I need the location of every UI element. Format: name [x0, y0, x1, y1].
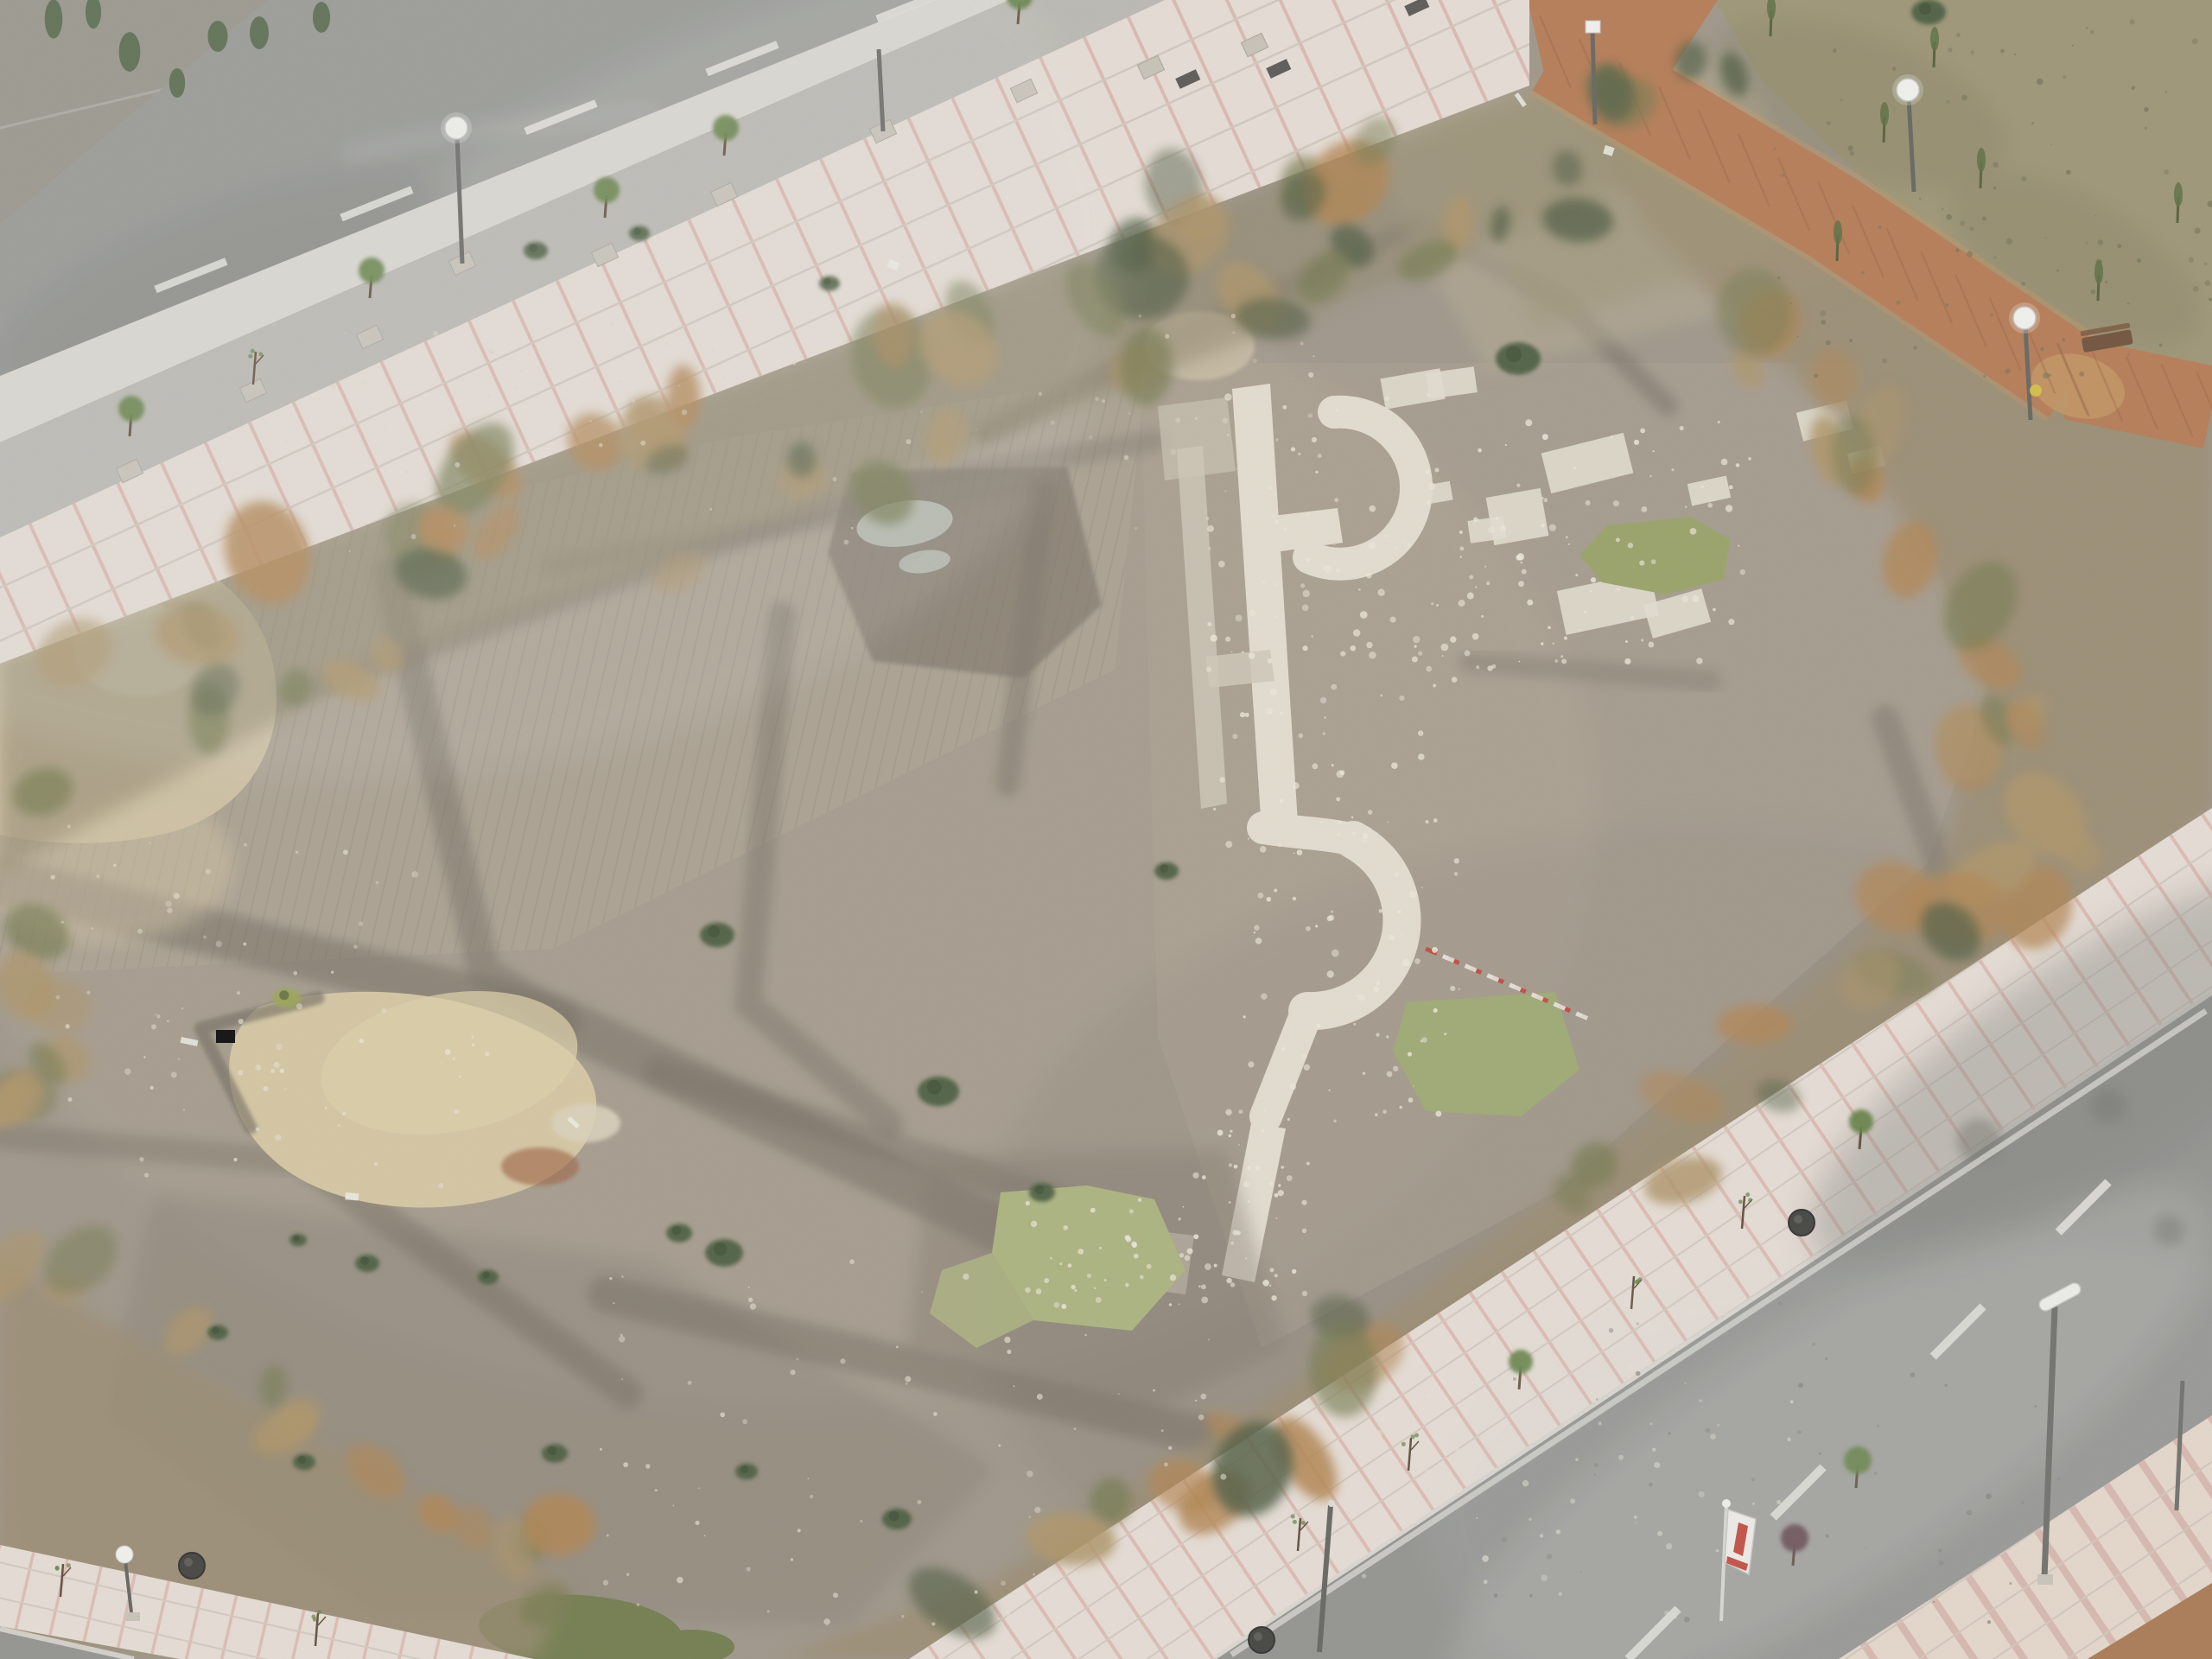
aerial-photo-excavation-site: [0, 0, 2212, 1659]
aerial-photo-stage: [0, 0, 2212, 1659]
photo-grain-overlay: [0, 0, 2212, 1659]
